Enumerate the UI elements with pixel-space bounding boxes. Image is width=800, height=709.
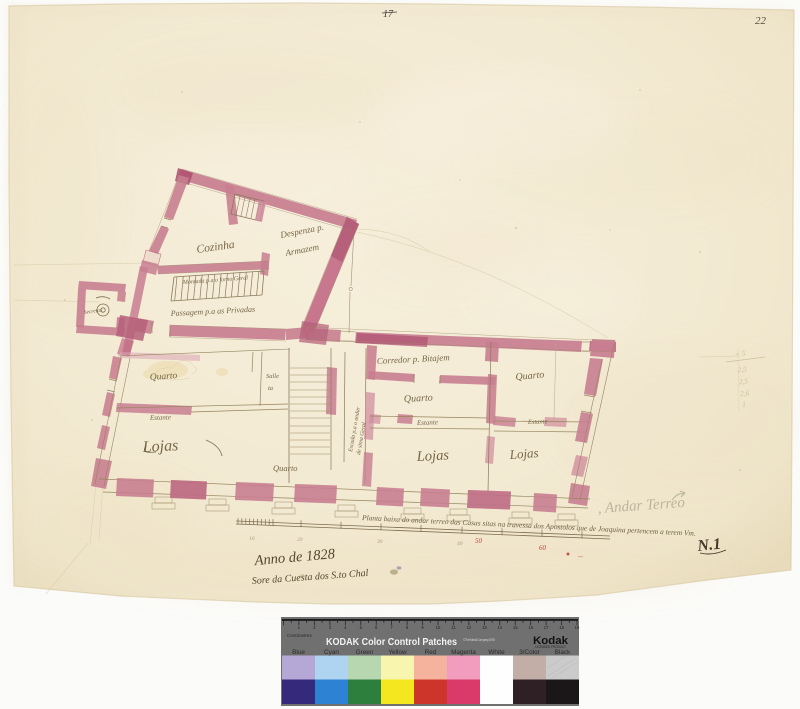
svg-text:N.1: N.1	[696, 536, 722, 555]
svg-text:15: 15	[513, 625, 518, 630]
svg-text:60: 60	[539, 544, 547, 552]
svg-text:KODAK Color Control Patches: KODAK Color Control Patches	[326, 637, 457, 648]
svg-text:ta: ta	[268, 385, 273, 392]
svg-text:Quarto: Quarto	[273, 463, 298, 473]
svg-text:Magenta: Magenta	[451, 649, 476, 656]
svg-text:Lojas: Lojas	[141, 437, 178, 456]
svg-text:10: 10	[436, 625, 441, 630]
svg-text:Cyan: Cyan	[324, 649, 339, 656]
svg-text:Blue: Blue	[292, 649, 305, 656]
svg-text:Lojas: Lojas	[415, 447, 449, 465]
svg-text:Centimetres: Centimetres	[287, 633, 312, 638]
svg-text:19: 19	[575, 625, 580, 630]
svg-text:White: White	[488, 649, 505, 656]
svg-text:17: 17	[544, 625, 549, 630]
svg-text:Red: Red	[425, 649, 437, 656]
svg-text:40: 40	[457, 540, 463, 547]
svg-text:50: 50	[475, 537, 483, 545]
svg-text:13: 13	[482, 625, 487, 630]
svg-text:22: 22	[755, 15, 767, 27]
svg-text:Yellow: Yellow	[388, 649, 407, 656]
svg-text:Estante: Estante	[527, 418, 548, 426]
svg-text:20: 20	[297, 537, 303, 543]
svg-text:16: 16	[528, 625, 533, 630]
svg-text:17: 17	[383, 9, 394, 20]
svg-text:30: 30	[376, 539, 383, 545]
svg-text:Green: Green	[356, 649, 374, 656]
svg-text:Lojas: Lojas	[508, 445, 539, 462]
svg-text:2,5: 2,5	[737, 364, 748, 374]
svg-text:Quarto: Quarto	[404, 392, 433, 404]
svg-text:2,6: 2,6	[739, 388, 750, 398]
svg-text:14: 14	[497, 625, 502, 630]
svg-text:10: 10	[249, 536, 255, 542]
svg-text:12: 12	[467, 625, 472, 630]
svg-text:11: 11	[451, 625, 456, 630]
svg-text:©The Mead Company, 1976: ©The Mead Company, 1976	[463, 638, 495, 642]
svg-text:Salle: Salle	[266, 373, 279, 380]
svg-text:18: 18	[559, 625, 564, 630]
svg-text:Estante: Estante	[149, 413, 171, 422]
svg-text:Quarto: Quarto	[150, 371, 178, 383]
svg-text:= 5: = 5	[734, 349, 746, 359]
svg-text:Estante: Estante	[416, 418, 438, 427]
svg-text:3/Color: 3/Color	[519, 649, 540, 656]
svg-text:Black: Black	[555, 649, 571, 656]
svg-text:2,5: 2,5	[738, 376, 749, 386]
